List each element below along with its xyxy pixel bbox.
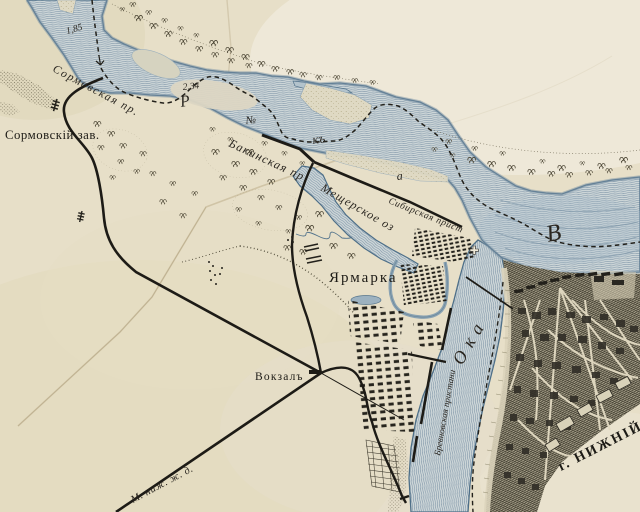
svg-text:а: а [396,169,403,183]
svg-text:къ: къ [311,130,326,147]
svg-text:№: № [244,114,257,127]
svg-text:Вокзалъ: Вокзалъ [255,371,304,383]
svg-text:2,34: 2,34 [182,81,200,93]
svg-text:Сормовскій зав.: Сормовскій зав. [5,128,100,142]
svg-text:Ярмарка: Ярмарка [329,270,398,286]
